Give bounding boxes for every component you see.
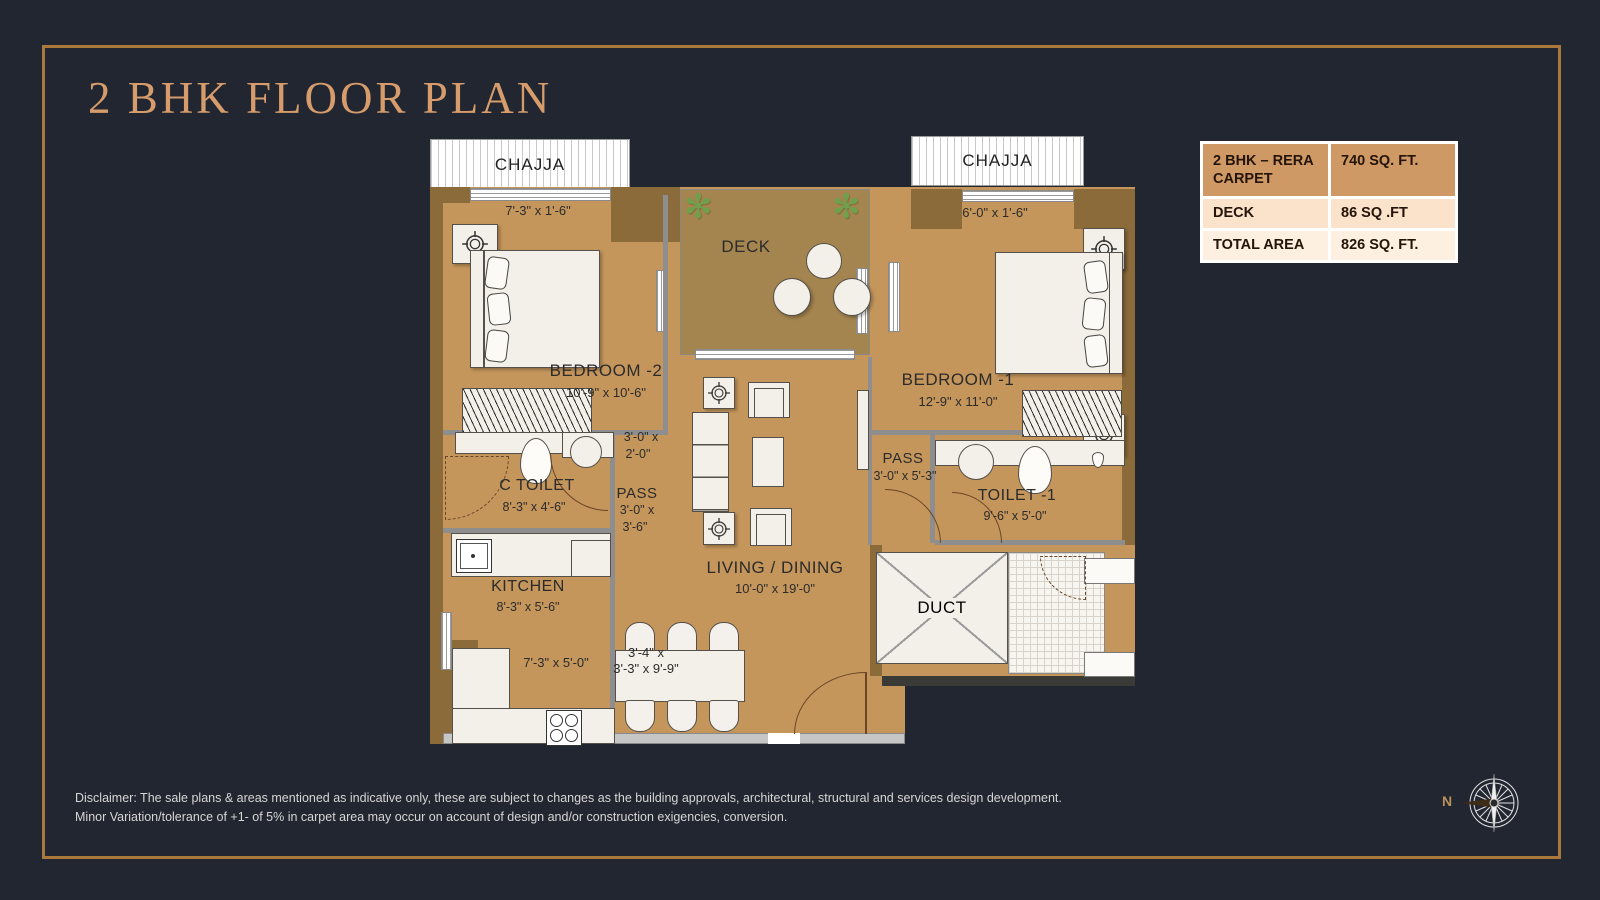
wall-bedroom1-left — [911, 189, 962, 229]
chajja-right-label: CHAJJA — [962, 151, 1032, 171]
bed-headboard-line — [483, 251, 485, 367]
bedroom2-dims: 10'-9" x 10'-6" — [566, 385, 646, 400]
deck-living-window — [695, 349, 855, 360]
plant-icon: ✻ — [684, 190, 713, 224]
pillow — [1081, 297, 1106, 331]
deck-label: DECK — [721, 237, 770, 257]
bedroom2-label: BEDROOM -2 — [550, 361, 663, 381]
toilet1-label: TOILET -1 — [978, 487, 1057, 505]
sink-drain — [471, 554, 475, 558]
kitchen-platform-dims: 7'-3" x 5'-0" — [523, 655, 589, 670]
living-fan-unit — [703, 512, 735, 545]
burner — [565, 714, 578, 727]
table-row-value: 740 SQ. FT. — [1331, 144, 1455, 196]
north-label: N — [1442, 793, 1452, 809]
pillow — [486, 292, 511, 326]
ctoilet-label: C TOILET — [499, 477, 574, 495]
plant-icon: ✻ — [832, 190, 861, 224]
living-dims: 10'-0" x 19'-0" — [735, 581, 815, 596]
bedroom2-bed — [470, 250, 600, 368]
table-row: DECK 86 SQ .FT — [1203, 199, 1455, 228]
pass-right-label: PASS — [883, 450, 924, 467]
wall-bedroom2-deck — [611, 187, 680, 242]
disclaimer-line1: Disclaimer: The sale plans & areas menti… — [75, 789, 1175, 808]
compass-icon — [1460, 772, 1522, 834]
dining-chair — [625, 700, 655, 732]
bedroom2-window — [470, 188, 611, 201]
pillow — [1083, 260, 1109, 295]
deck-table — [806, 243, 842, 279]
bedroom1-dims: 12'-9" x 11'-0" — [919, 394, 998, 409]
page-title: 2 BHK FLOOR PLAN — [88, 72, 552, 124]
living-label: LIVING / DINING — [707, 558, 844, 578]
table-row: 2 BHK – RERA CARPET 740 SQ. FT. — [1203, 144, 1455, 196]
pass-upper-dims: 2'-0" — [626, 447, 651, 461]
area-table: 2 BHK – RERA CARPET 740 SQ. FT. DECK 86 … — [1200, 141, 1458, 263]
bedroom1-wardrobe — [1022, 390, 1122, 437]
dining-chair — [709, 700, 739, 732]
living-fan-unit — [703, 377, 735, 409]
toilet1-sink — [958, 444, 994, 480]
chajja-left: CHAJJA — [430, 139, 630, 191]
fan-icon — [707, 381, 731, 405]
kitchen-platform-bottom — [452, 708, 615, 744]
entry-door-leaf — [865, 672, 867, 734]
coffee-table — [752, 437, 784, 487]
living-armchair — [748, 382, 790, 418]
dining-dims: 3'-3" x 9'-9" — [613, 661, 679, 676]
bedroom1-window — [962, 190, 1074, 202]
table-row-label: 2 BHK – RERA CARPET — [1203, 144, 1328, 196]
kitchen-side-window — [441, 612, 452, 670]
table-row-label: DECK — [1203, 199, 1328, 228]
entry-door-gap — [768, 733, 800, 744]
tv-unit — [857, 390, 869, 470]
disclaimer: Disclaimer: The sale plans & areas menti… — [75, 789, 1175, 828]
pillow — [484, 256, 510, 291]
burner — [550, 714, 563, 727]
ctoilet-dims: 8'-3" x 4'-6" — [503, 500, 566, 514]
table-row-label: TOTAL AREA — [1203, 231, 1328, 260]
lift-box — [1084, 558, 1135, 584]
deck-chair — [773, 278, 811, 316]
burner — [550, 729, 563, 742]
fan-icon — [707, 517, 731, 541]
table-row-value: 86 SQ .FT — [1331, 199, 1455, 228]
kitchen-stove — [546, 710, 582, 746]
bedroom1-side-window — [888, 262, 900, 332]
pillow — [1083, 334, 1109, 368]
chajja-right-dims: 6'-0" x 1'-6" — [962, 205, 1028, 220]
living-armchair — [750, 508, 792, 546]
bedroom1-label: BEDROOM -1 — [902, 370, 1015, 390]
deck-chair — [833, 278, 871, 316]
duct-shaft: DUCT — [876, 552, 1008, 664]
duct-label: DUCT — [911, 598, 972, 618]
wall-bedroom2-living — [663, 195, 668, 435]
lift-box — [1084, 652, 1135, 677]
pass-left-label: PASS — [617, 485, 658, 502]
toilet1-dims: 9'-6" x 5'-0" — [984, 509, 1047, 523]
living-sofa — [692, 412, 729, 512]
chajja-left-label: CHAJJA — [495, 155, 565, 175]
kitchen-sink — [456, 539, 492, 573]
kitchen-appliance — [571, 540, 611, 577]
pass-left-dims: 3'-6" — [623, 520, 648, 534]
wall-bottom-right-section — [882, 676, 1135, 686]
table-row: TOTAL AREA 826 SQ. FT. — [1203, 231, 1455, 260]
kitchen-dims: 8'-3" x 5'-6" — [497, 600, 560, 614]
floor-plan-page: 2 BHK FLOOR PLAN 2 BHK – RERA CARPET 740… — [0, 0, 1600, 900]
dining-chair — [667, 700, 697, 732]
pass-left-dims: 3'-0" x — [620, 503, 655, 517]
disclaimer-line2: Minor Variation/tolerance of +1- of 5% i… — [75, 808, 1175, 827]
wall-top-left-corner — [430, 187, 470, 203]
chajja-left-dims: 7'-3" x 1'-6" — [505, 203, 571, 218]
pillow — [484, 329, 510, 363]
dining-dims: 3'-4" x — [628, 645, 664, 660]
pass-right-dims: 3'-0" x 5'-3" — [874, 469, 937, 483]
kitchen-label: KITCHEN — [491, 578, 565, 596]
table-row-value: 826 SQ. FT. — [1331, 231, 1455, 260]
burner — [565, 729, 578, 742]
pass-upper-dims: 3'-0" x — [624, 430, 659, 444]
bed-headboard-line — [1109, 253, 1111, 373]
chajja-right: CHAJJA — [911, 136, 1084, 186]
bedroom1-bed — [995, 252, 1123, 374]
